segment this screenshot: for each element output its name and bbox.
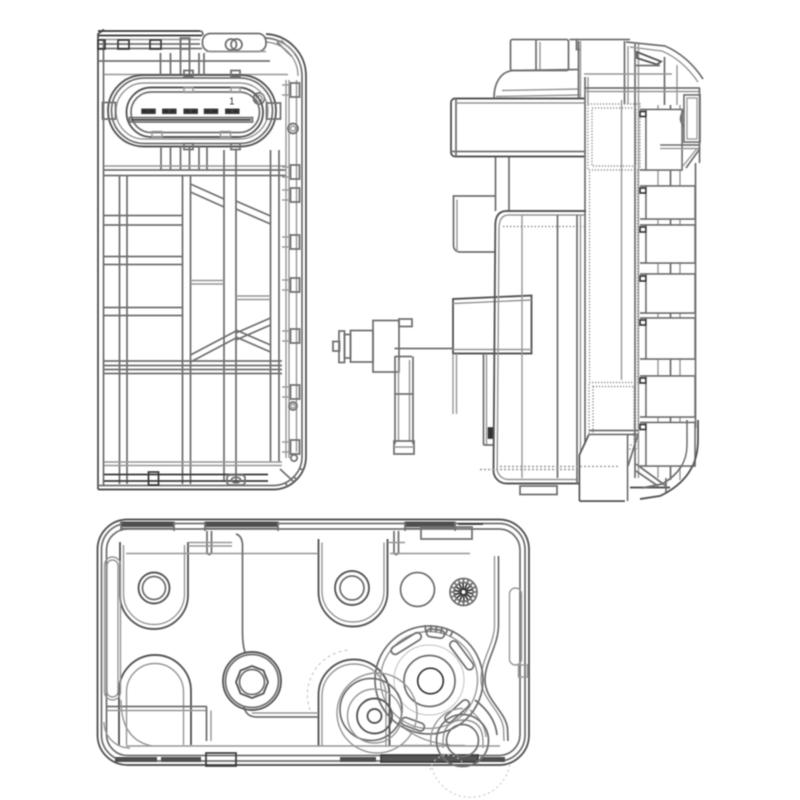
svg-text:1: 1 [229, 97, 235, 108]
